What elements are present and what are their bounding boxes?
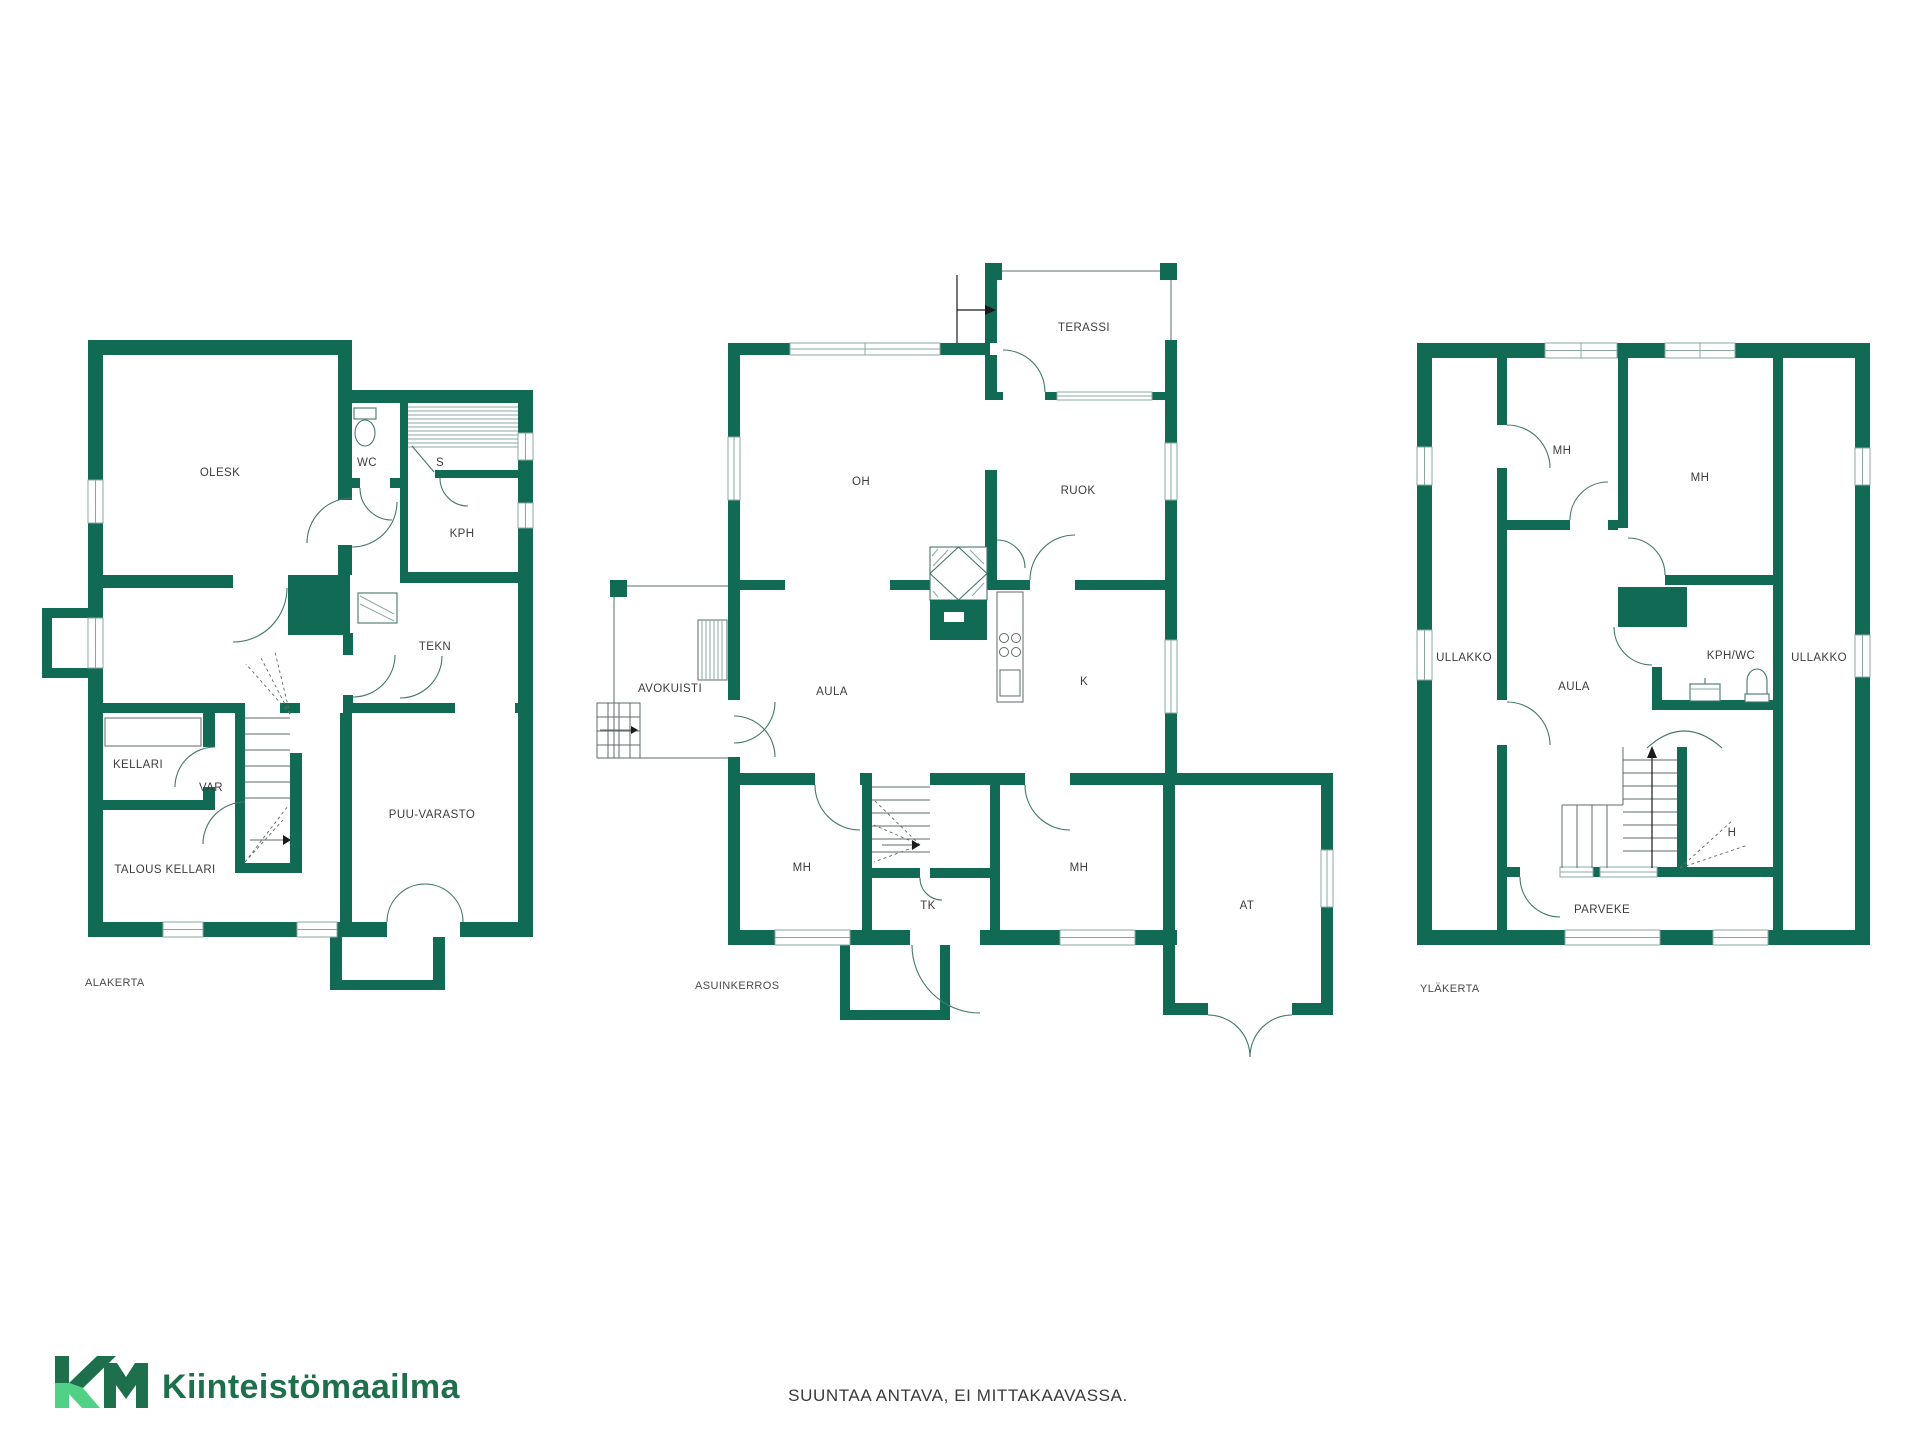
room-label-tekn: TEKN bbox=[419, 641, 451, 653]
room-label-ullakko-2: ULLAKKO bbox=[1791, 652, 1847, 664]
window bbox=[728, 343, 1333, 945]
km-logo-mark bbox=[55, 1356, 148, 1408]
room-label-h: H bbox=[1728, 827, 1737, 839]
room-label-kph: KPH bbox=[450, 528, 475, 540]
room-label-ruok: RUOK bbox=[1061, 485, 1096, 497]
floorplan-canvas: OLESK WC S KPH TEKN KELLARI VAR PUU-VARA… bbox=[0, 0, 1920, 1440]
sauna-benches bbox=[408, 407, 518, 447]
bathroom-fixtures bbox=[1690, 669, 1769, 702]
fireplace bbox=[930, 547, 987, 640]
floor-plan-asuinkerros: TERASSI OH RUOK AVOKUISTI AULA K MH TK M… bbox=[597, 263, 1333, 1057]
room-label-terassi: TERASSI bbox=[1058, 322, 1110, 334]
room-label-parveke: PARVEKE bbox=[1574, 904, 1630, 916]
room-label-ullakko-1: ULLAKKO bbox=[1436, 652, 1492, 664]
room-label-avokuisti: AVOKUISTI bbox=[638, 683, 702, 695]
room-label-wc: WC bbox=[357, 457, 377, 469]
room-label-olesk: OLESK bbox=[200, 467, 240, 479]
door-arcs-alakerta bbox=[175, 446, 468, 922]
room-label-tk: TK bbox=[920, 900, 936, 912]
room-label-oh: OH bbox=[852, 476, 870, 488]
floor-label-alakerta: ALAKERTA bbox=[85, 977, 145, 989]
open-porch bbox=[597, 580, 728, 758]
door-arcs-asuinkerros bbox=[734, 350, 1075, 1013]
room-label-var: VAR bbox=[199, 782, 223, 794]
room-label-aula: AULA bbox=[816, 686, 848, 698]
km-logo: Kiinteistömaailma bbox=[55, 1356, 460, 1408]
room-label-mh-2: MH bbox=[1070, 862, 1089, 874]
room-label-kphwc: KPH/WC bbox=[1707, 650, 1755, 662]
floorplan-sheet: OLESK WC S KPH TEKN KELLARI VAR PUU-VARA… bbox=[0, 0, 1920, 1440]
hatch-icon bbox=[358, 593, 397, 623]
room-label-talouskellari: TALOUS KELLARI bbox=[114, 864, 215, 876]
room-label-mh-1: MH bbox=[793, 862, 812, 874]
door-arcs-ylakerta bbox=[1507, 425, 1722, 917]
floor-plan-ylakerta: MH MH ULLAKKO AULA KPH/WC ULLAKKO H PARV… bbox=[1417, 343, 1870, 995]
room-label-k: K bbox=[1080, 676, 1088, 688]
toilet-icon bbox=[354, 408, 376, 446]
window bbox=[88, 433, 533, 937]
stairs-asuinkerros bbox=[872, 787, 930, 862]
window bbox=[1417, 343, 1870, 945]
room-label-sauna: S bbox=[436, 457, 444, 469]
garage-structure bbox=[1163, 773, 1333, 1057]
km-logo-wordmark: Kiinteistömaailma bbox=[162, 1368, 460, 1406]
floor-label-ylakerta: YLÄKERTA bbox=[1420, 983, 1480, 995]
floor-plan-alakerta: OLESK WC S KPH TEKN KELLARI VAR PUU-VARA… bbox=[42, 340, 533, 990]
floor-label-asuinkerros: ASUINKERROS bbox=[695, 980, 779, 992]
shelf bbox=[105, 718, 201, 746]
room-label-kellari: KELLARI bbox=[113, 759, 163, 771]
room-label-aula-2: AULA bbox=[1558, 681, 1590, 693]
room-label-puuvarasto: PUU-VARASTO bbox=[389, 809, 475, 821]
stairs-ylakerta bbox=[1562, 746, 1748, 868]
kitchen-counter bbox=[997, 592, 1023, 702]
room-label-at: AT bbox=[1240, 900, 1255, 912]
footer-disclaimer: SUUNTAA ANTAVA, EI MITTAKAAVASSA. bbox=[788, 1386, 1128, 1405]
room-label-mh-3: MH bbox=[1553, 445, 1572, 457]
room-label-mh-4: MH bbox=[1691, 472, 1710, 484]
stairs-alakerta bbox=[245, 652, 291, 862]
